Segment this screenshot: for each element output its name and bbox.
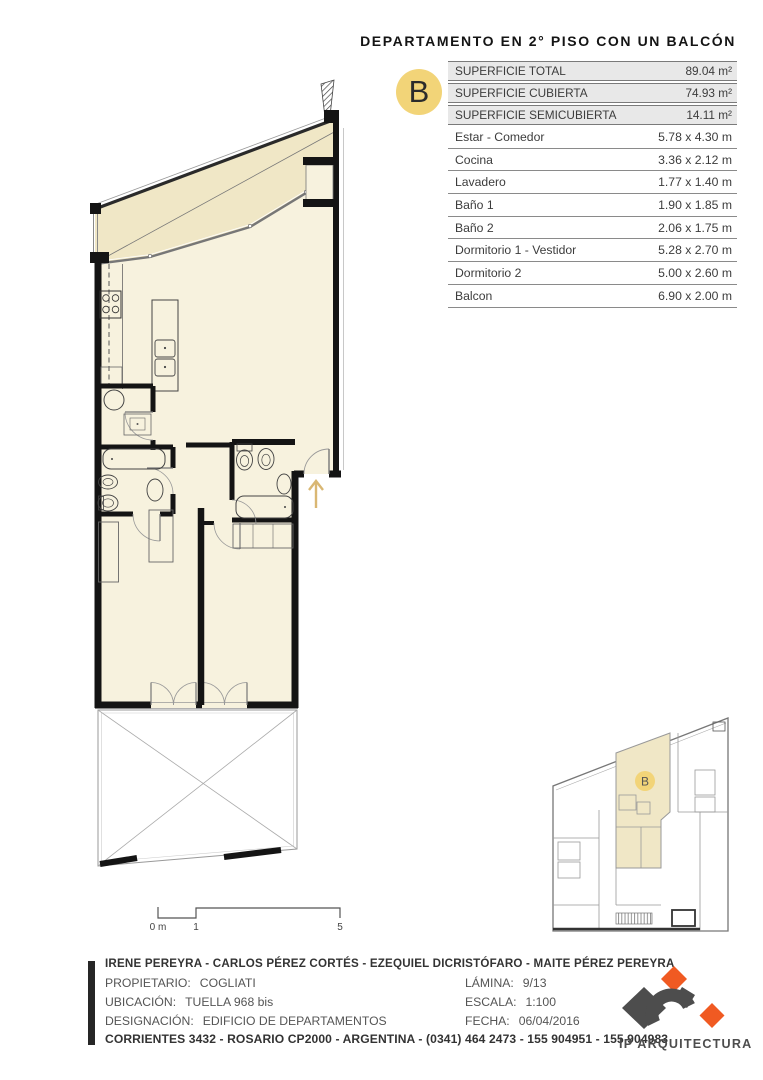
room-row: Baño 2 2.06 x 1.75 m	[448, 217, 737, 240]
scale-five-label: 5	[337, 922, 343, 933]
logo-text: IP ARQUITECTURA	[619, 1037, 752, 1051]
room-value: 1.90 x 1.85 m	[658, 198, 732, 212]
room-label: Baño 2	[455, 221, 494, 235]
floor-plan: 0 m 1 5	[85, 78, 357, 940]
key-plan: B	[545, 715, 740, 937]
surface-table: SUPERFICIE TOTAL 89.04 m² SUPERFICIE CUB…	[448, 61, 737, 127]
patio-area	[98, 710, 297, 866]
surface-label: SUPERFICIE SEMICUBIERTA	[455, 108, 616, 122]
room-row: Cocina 3.36 x 2.12 m	[448, 149, 737, 172]
room-value: 5.00 x 2.60 m	[658, 266, 732, 280]
room-dimensions-table: Estar - Comedor 5.78 x 4.30 m Cocina 3.3…	[448, 126, 737, 308]
info-label: DESIGNACIÓN:	[105, 1014, 194, 1028]
room-row: Dormitorio 1 - Vestidor 5.28 x 2.70 m	[448, 239, 737, 262]
room-row: Estar - Comedor 5.78 x 4.30 m	[448, 126, 737, 149]
room-label: Dormitorio 2	[455, 266, 521, 280]
keyplan-elevator	[672, 910, 695, 926]
plan-sheet: DEPARTAMENTO EN 2° PISO CON UN BALCÓN B …	[0, 0, 763, 1080]
page-title: DEPARTAMENTO EN 2° PISO CON UN BALCÓN	[360, 33, 736, 49]
title-block: IRENE PEREYRA - CARLOS PÉREZ CORTÉS - EZ…	[88, 957, 674, 1046]
room-value: 5.28 x 2.70 m	[658, 243, 732, 257]
surface-value: 14.11 m²	[686, 108, 732, 122]
unit-badge: B	[396, 69, 442, 115]
room-row: Baño 1 1.90 x 1.85 m	[448, 194, 737, 217]
room-row: Balcon 6.90 x 2.00 m	[448, 285, 737, 308]
keyplan-stairs-icon	[616, 913, 652, 924]
info-right-value: 06/04/2016	[519, 1014, 580, 1028]
room-row: Dormitorio 2 5.00 x 2.60 m	[448, 262, 737, 285]
authors-line: IRENE PEREYRA - CARLOS PÉREZ CORTÉS - EZ…	[105, 957, 674, 970]
room-value: 5.78 x 4.30 m	[658, 130, 732, 144]
room-label: Lavadero	[455, 175, 506, 189]
scale-one-label: 1	[193, 922, 199, 933]
info-right-label: ESCALA:	[465, 995, 516, 1009]
room-label: Dormitorio 1 - Vestidor	[455, 243, 576, 257]
room-value: 2.06 x 1.75 m	[658, 221, 732, 235]
surface-label: SUPERFICIE TOTAL	[455, 64, 566, 78]
room-row: Lavadero 1.77 x 1.40 m	[448, 171, 737, 194]
surface-value: 89.04 m²	[685, 64, 732, 78]
company-logo: IP ARQUITECTURA	[616, 950, 762, 1058]
surface-row: SUPERFICIE CUBIERTA 74.93 m²	[448, 83, 737, 103]
info-right-value: 1:100	[525, 995, 556, 1009]
surface-value: 74.93 m²	[685, 86, 732, 100]
footer-accent-bar	[88, 961, 95, 1045]
keyplan-unit-badge-letter: B	[641, 775, 649, 789]
info-right-value: 9/13	[523, 976, 547, 990]
room-value: 1.77 x 1.40 m	[658, 175, 732, 189]
info-right-label: FECHA:	[465, 1014, 510, 1028]
entry-arrow-icon	[309, 481, 323, 508]
info-value: TUELLA 968 bis	[185, 995, 273, 1009]
info-value: EDIFICIO DE DEPARTAMENTOS	[203, 1014, 387, 1028]
info-label: UBICACIÓN:	[105, 995, 176, 1009]
room-label: Balcon	[455, 289, 492, 303]
logo-orange-diamond-right-icon	[700, 1003, 725, 1028]
scale-zero-label: 0 m	[150, 922, 167, 933]
scale-bar: 0 m 1 5	[150, 907, 344, 933]
info-right-label: LÁMINA:	[465, 976, 514, 990]
room-label: Baño 1	[455, 198, 494, 212]
keyplan-unit-b	[616, 733, 670, 868]
address-line: CORRIENTES 3432 - ROSARIO CP2000 - ARGEN…	[105, 1032, 674, 1046]
surface-row: SUPERFICIE TOTAL 89.04 m²	[448, 61, 737, 81]
info-label: PROPIETARIO:	[105, 976, 191, 990]
project-info-rows: PROPIETARIO: COGLIATI LÁMINA: 9/13 UBICA…	[105, 976, 674, 1028]
corner-block	[324, 110, 339, 123]
room-value: 6.90 x 2.00 m	[658, 289, 732, 303]
room-label: Cocina	[455, 153, 493, 167]
project-info-row: DESIGNACIÓN: EDIFICIO DE DEPARTAMENTOS F…	[105, 1014, 674, 1028]
project-info-row: UBICACIÓN: TUELLA 968 bis ESCALA: 1:100	[105, 995, 674, 1009]
info-value: COGLIATI	[200, 976, 256, 990]
surface-row: SUPERFICIE SEMICUBIERTA 14.11 m²	[448, 105, 737, 125]
room-value: 3.36 x 2.12 m	[658, 153, 732, 167]
surface-label: SUPERFICIE CUBIERTA	[455, 86, 588, 100]
project-info-row: PROPIETARIO: COGLIATI LÁMINA: 9/13	[105, 976, 674, 990]
room-label: Estar - Comedor	[455, 130, 544, 144]
